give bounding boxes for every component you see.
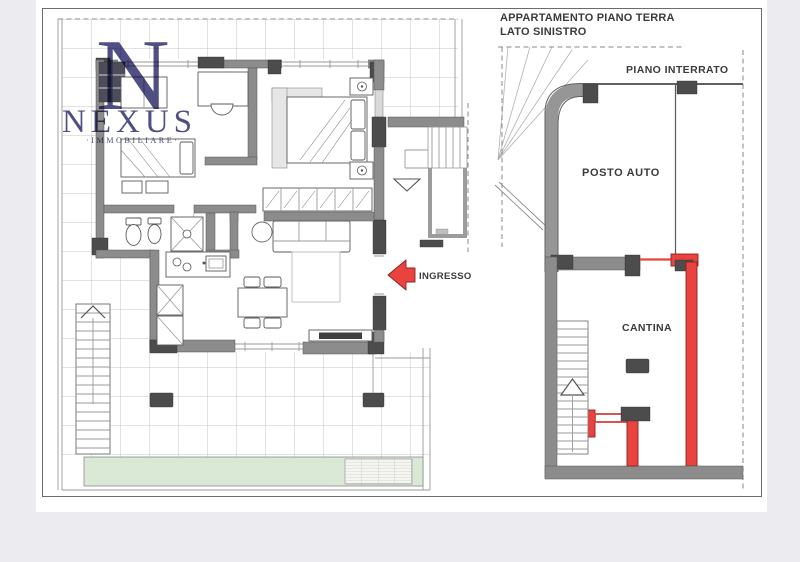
shower <box>171 217 203 251</box>
bidet <box>148 218 161 244</box>
nightstand-lamp <box>350 162 373 179</box>
external-stairs <box>76 304 110 454</box>
plan-title-line2: LATO SINISTRO <box>500 26 587 38</box>
basement-title: PIANO INTERRATO <box>626 64 728 76</box>
nightstand <box>146 181 168 193</box>
tv-unit <box>309 330 372 341</box>
right-window <box>375 90 383 117</box>
pillow <box>180 142 193 174</box>
round-table <box>252 222 272 242</box>
entrance-label: INGRESSO <box>419 271 472 282</box>
sink <box>203 256 227 271</box>
desk <box>198 72 248 106</box>
bed-platform <box>272 88 287 168</box>
lift-wall <box>463 168 467 238</box>
lift-wall <box>428 168 432 238</box>
cellar-label: CANTINA <box>622 322 672 334</box>
parking-label: POSTO AUTO <box>582 167 660 179</box>
lift-wall <box>428 234 467 238</box>
watermark-brand: NEXUS <box>62 104 197 140</box>
bedroom-2-furniture <box>263 78 373 211</box>
nightstand <box>122 181 142 193</box>
cantina-stairs <box>557 321 588 454</box>
pillow <box>351 100 365 129</box>
toilet <box>126 218 141 246</box>
nightstand-lamp <box>350 78 373 95</box>
pillow <box>351 131 365 160</box>
floor-plan-page: INGRESSO POSTO AUTO <box>0 0 800 562</box>
floor-plan-drawing: INGRESSO POSTO AUTO <box>0 0 800 562</box>
garden-strip <box>84 457 423 486</box>
sofa <box>273 221 350 252</box>
watermark-tagline: ·IMMOBILIARE· <box>86 136 179 145</box>
plan-title-line1: APPARTAMENTO PIANO TERRA <box>500 12 675 24</box>
cantina-furniture <box>626 359 649 373</box>
wardrobe-strip <box>263 188 372 211</box>
